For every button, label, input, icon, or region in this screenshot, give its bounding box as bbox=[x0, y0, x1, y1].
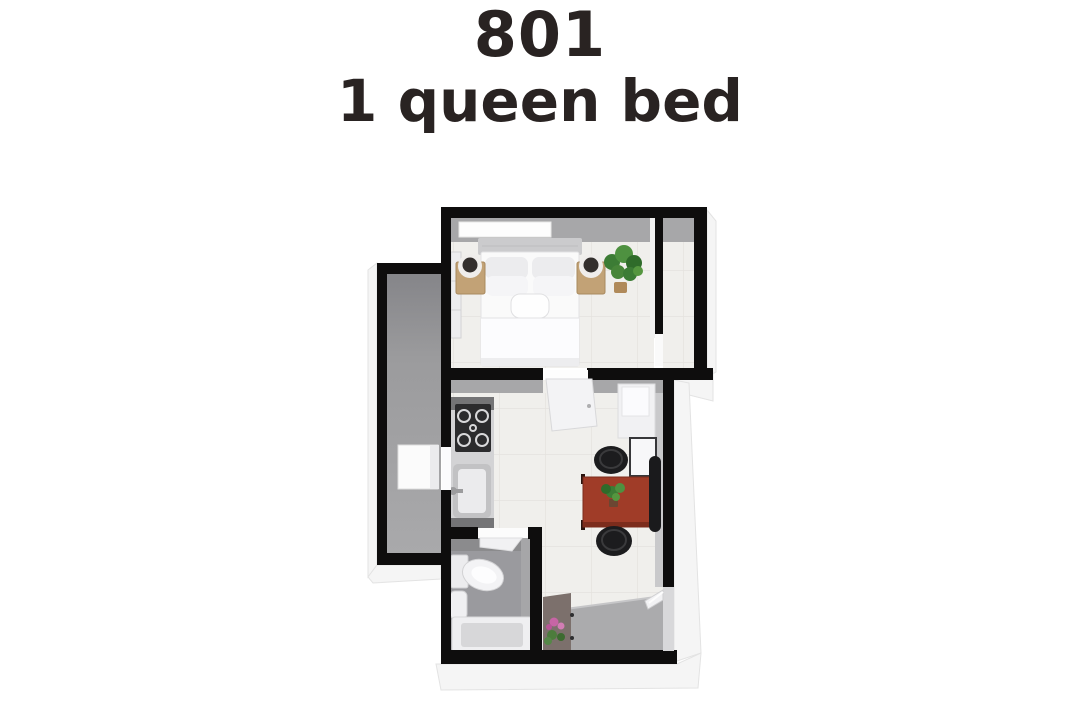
bathtub-basin bbox=[461, 623, 523, 647]
closet-door bbox=[655, 334, 663, 366]
wall-divider-right bbox=[587, 368, 713, 380]
wall-left-upper bbox=[441, 207, 451, 380]
storage-box-side bbox=[430, 445, 439, 489]
fridge bbox=[618, 384, 655, 438]
wall-left-lower bbox=[441, 490, 451, 652]
wall-closet-right bbox=[694, 210, 707, 377]
accent-pillow bbox=[511, 294, 549, 318]
plant-pot bbox=[614, 282, 627, 293]
wall-bathroom-right bbox=[530, 527, 542, 664]
balcony-door bbox=[442, 447, 451, 490]
console-handle bbox=[570, 636, 574, 640]
pillow bbox=[533, 276, 575, 296]
bathroom bbox=[449, 538, 532, 654]
pillow bbox=[485, 257, 528, 279]
console-handle bbox=[570, 613, 574, 617]
kitchenette bbox=[449, 397, 494, 532]
bathroom-sink bbox=[450, 591, 467, 619]
wall-divider-left bbox=[441, 368, 543, 380]
balcony bbox=[387, 274, 441, 553]
bedroom-window bbox=[459, 222, 551, 237]
side-chair bbox=[649, 456, 661, 532]
wall-bathroom-top-left bbox=[441, 527, 478, 539]
closet-wall-face bbox=[650, 218, 655, 338]
page: 801 1 queen bed bbox=[0, 0, 1080, 720]
floorplan bbox=[0, 0, 1080, 720]
wall-bedroom-closet bbox=[654, 210, 663, 338]
bedroom-door bbox=[545, 370, 597, 431]
pillow bbox=[532, 257, 575, 279]
door-handle bbox=[587, 404, 591, 408]
wall-balcony-bottom bbox=[377, 553, 441, 565]
wall-right-living bbox=[663, 380, 674, 587]
wall-top bbox=[441, 207, 707, 218]
wall-left-mid bbox=[441, 380, 451, 447]
queen-bed bbox=[478, 238, 582, 366]
wall-balcony-left bbox=[377, 263, 387, 565]
wall-bottom bbox=[441, 650, 677, 664]
bed-foot bbox=[481, 358, 579, 366]
pillow bbox=[486, 276, 528, 296]
entry-console bbox=[543, 593, 574, 651]
balcony-floor bbox=[387, 274, 441, 553]
dining-table bbox=[581, 474, 657, 530]
